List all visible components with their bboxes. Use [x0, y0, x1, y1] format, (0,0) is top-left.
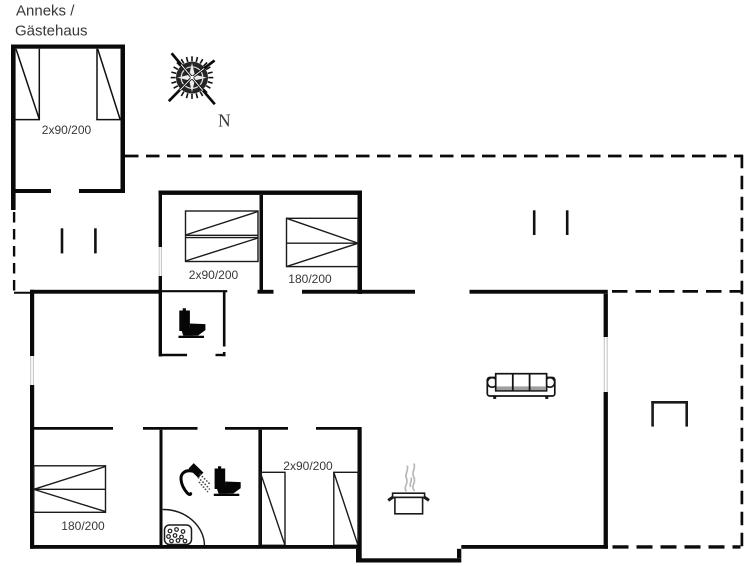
svg-text:180/200: 180/200: [61, 519, 105, 533]
svg-text:2x90/200: 2x90/200: [283, 459, 333, 473]
svg-text:Anneks /: Anneks /: [16, 3, 75, 20]
svg-text:N: N: [218, 110, 231, 130]
svg-text:2x90/200: 2x90/200: [42, 123, 92, 137]
svg-text:180/200: 180/200: [288, 272, 332, 286]
svg-text:2x90/200: 2x90/200: [189, 268, 239, 282]
svg-text:Gästehaus: Gästehaus: [15, 22, 88, 39]
